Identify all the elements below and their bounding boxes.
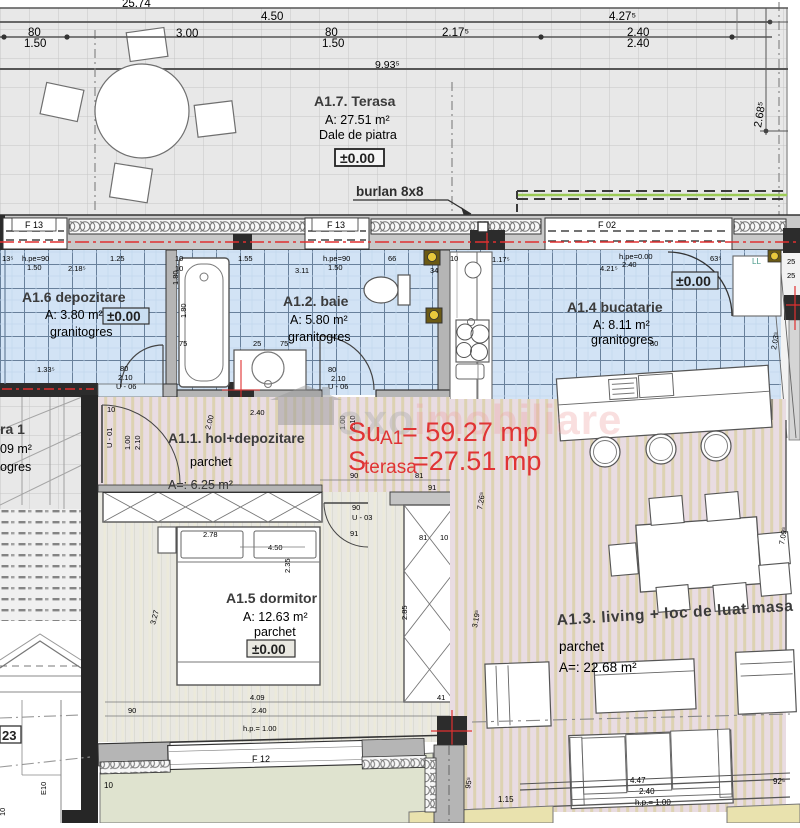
svg-text:F 13: F 13 [25, 220, 43, 230]
svg-text:2.17⁵: 2.17⁵ [442, 27, 469, 39]
svg-text:U - 03: U - 03 [352, 513, 372, 522]
svg-text:80: 80 [328, 365, 336, 374]
svg-text:92⁵: 92⁵ [773, 777, 785, 786]
svg-text:LL: LL [752, 257, 761, 266]
svg-text:2.35: 2.35 [283, 558, 292, 573]
svg-text:2.40: 2.40 [252, 706, 267, 715]
svg-text:75: 75 [179, 339, 187, 348]
svg-text:A: 27.51 m²: A: 27.51 m² [325, 113, 390, 127]
svg-text:25: 25 [787, 271, 795, 280]
svg-text:±0.00: ±0.00 [107, 309, 141, 324]
svg-text:2.10: 2.10 [118, 373, 133, 382]
svg-text:9.93⁵: 9.93⁵ [375, 59, 400, 71]
svg-text:81: 81 [419, 533, 427, 542]
svg-text:parchet: parchet [190, 455, 232, 469]
svg-text:4.09: 4.09 [250, 693, 265, 702]
svg-text:h.pe=90: h.pe=90 [22, 254, 49, 263]
svg-text:h.p.= 1.00: h.p.= 1.00 [243, 724, 277, 733]
svg-text:F 12: F 12 [252, 754, 270, 764]
svg-text:23: 23 [2, 728, 16, 743]
svg-text:h.pe=90: h.pe=90 [323, 254, 350, 263]
svg-text:34: 34 [430, 266, 438, 275]
svg-text:ra 1: ra 1 [0, 421, 25, 437]
svg-text:2.40: 2.40 [627, 38, 649, 50]
svg-text:=27.51 mp: =27.51 mp [413, 446, 541, 476]
svg-text:2.85: 2.85 [400, 605, 409, 620]
svg-text:±0.00: ±0.00 [252, 642, 286, 657]
svg-text:4.21⁵: 4.21⁵ [600, 264, 618, 273]
svg-text:1.80: 1.80 [179, 303, 188, 318]
svg-text:1.33⁵: 1.33⁵ [37, 365, 55, 374]
svg-text:A: 8.11 m²: A: 8.11 m² [593, 318, 650, 332]
svg-text:1.50: 1.50 [322, 38, 344, 50]
svg-text:F 02: F 02 [598, 220, 616, 230]
svg-text:terasa: terasa [364, 457, 417, 478]
svg-text:1.50: 1.50 [328, 263, 343, 272]
svg-text:A: 3.80 m²: A: 3.80 m² [45, 308, 103, 322]
svg-text:3.00: 3.00 [176, 28, 198, 40]
svg-text:parchet: parchet [254, 625, 296, 639]
svg-text:A1.5 dormitor: A1.5 dormitor [226, 590, 318, 606]
svg-text:A=: 6.25 m²: A=: 6.25 m² [168, 478, 233, 492]
svg-text:U - 01: U - 01 [105, 428, 114, 448]
svg-text:2.10: 2.10 [133, 435, 142, 450]
svg-text:A1.7. Terasa: A1.7. Terasa [314, 93, 396, 109]
svg-text:granitogres: granitogres [591, 333, 654, 347]
svg-text:1.50: 1.50 [27, 263, 42, 272]
svg-text:10: 10 [104, 781, 113, 790]
svg-text:1.25: 1.25 [110, 254, 125, 263]
svg-text:2.78: 2.78 [203, 530, 218, 539]
svg-text:A1.1. hol+depozitare: A1.1. hol+depozitare [168, 430, 305, 446]
svg-text:80: 80 [120, 364, 128, 373]
svg-text:10: 10 [175, 254, 183, 263]
svg-text:Dale de piatra: Dale de piatra [319, 128, 397, 142]
svg-text:1.80: 1.80 [171, 270, 180, 285]
svg-text:91: 91 [350, 529, 358, 538]
svg-text:25: 25 [253, 339, 261, 348]
svg-text:±0.00: ±0.00 [340, 150, 375, 166]
svg-text:3.11: 3.11 [295, 266, 309, 275]
svg-text:2.40: 2.40 [250, 408, 265, 417]
svg-text:25: 25 [787, 257, 795, 266]
svg-text:1.50: 1.50 [24, 38, 46, 50]
svg-text:91: 91 [428, 483, 436, 492]
svg-text:E10: E10 [39, 782, 48, 795]
svg-text:75: 75 [280, 339, 288, 348]
svg-text:A=: 22.68 m²: A=: 22.68 m² [559, 660, 637, 675]
svg-text:10: 10 [440, 533, 448, 542]
svg-text:±0.00: ±0.00 [676, 273, 711, 289]
svg-text:= 59.27 mp: = 59.27 mp [402, 417, 538, 447]
svg-text:U - 06: U - 06 [328, 382, 348, 391]
svg-text:4.27⁵: 4.27⁵ [609, 11, 636, 23]
svg-text:80: 80 [650, 339, 658, 348]
svg-text:h.p.= 1.00: h.p.= 1.00 [635, 798, 671, 807]
svg-text:granitogres: granitogres [50, 325, 113, 339]
svg-text:F 13: F 13 [327, 220, 345, 230]
svg-text:ogres: ogres [0, 460, 31, 474]
svg-text:A1.2. baie: A1.2. baie [283, 293, 349, 309]
svg-text:2.18⁵: 2.18⁵ [68, 264, 86, 273]
svg-text:A: 5.80 m²: A: 5.80 m² [290, 313, 348, 327]
svg-text:63⁵: 63⁵ [710, 254, 721, 263]
svg-text:2.40: 2.40 [622, 260, 637, 269]
svg-text:1.15: 1.15 [498, 795, 514, 804]
svg-text:90: 90 [128, 706, 136, 715]
svg-text:burlan 8x8: burlan 8x8 [356, 184, 424, 199]
svg-text:1.17⁵: 1.17⁵ [492, 255, 510, 264]
svg-text:2.40: 2.40 [639, 787, 655, 796]
svg-text:1.55: 1.55 [238, 254, 253, 263]
svg-text:90: 90 [352, 503, 360, 512]
svg-text:10: 10 [107, 405, 115, 414]
svg-text:A: 12.63 m²: A: 12.63 m² [243, 610, 308, 624]
svg-text:09 m²: 09 m² [0, 442, 32, 456]
svg-text:66: 66 [388, 254, 396, 263]
svg-text:13⁵: 13⁵ [2, 254, 13, 263]
svg-text:A1.4 bucatarie: A1.4 bucatarie [567, 299, 663, 315]
svg-text:10: 10 [0, 808, 7, 816]
svg-text:25.74: 25.74 [122, 0, 151, 10]
svg-text:A1.6 depozitare: A1.6 depozitare [22, 289, 126, 305]
svg-text:granitogres: granitogres [288, 330, 351, 344]
svg-text:1.00: 1.00 [123, 435, 132, 450]
svg-text:U - 06: U - 06 [116, 382, 136, 391]
svg-text:parchet: parchet [559, 639, 604, 654]
svg-text:4.50: 4.50 [261, 11, 283, 23]
svg-text:A1: A1 [380, 428, 403, 449]
svg-text:10: 10 [450, 254, 458, 263]
svg-text:4.47: 4.47 [630, 776, 646, 785]
svg-text:4.50: 4.50 [268, 543, 283, 552]
svg-text:Su: Su [348, 417, 381, 447]
svg-text:41: 41 [437, 693, 445, 702]
